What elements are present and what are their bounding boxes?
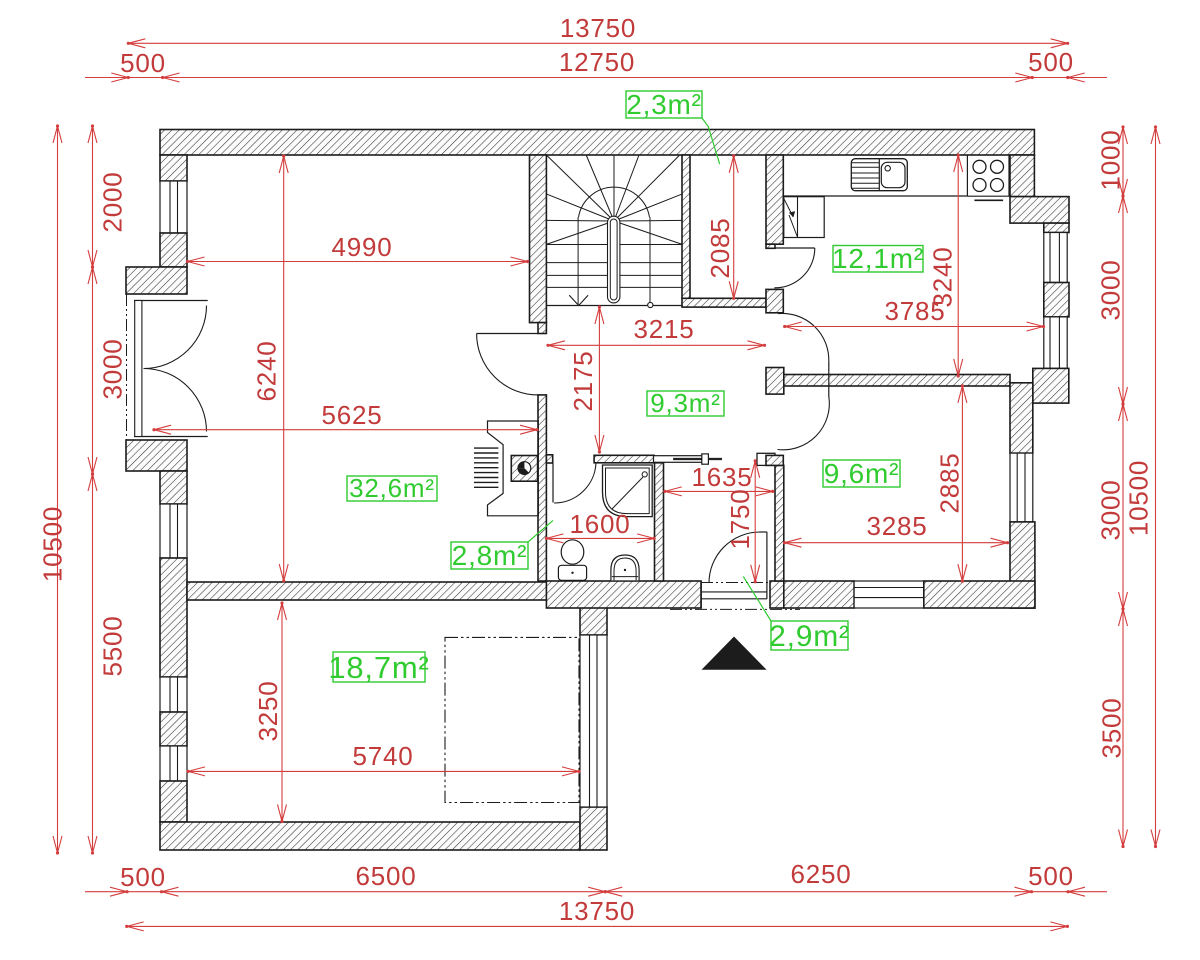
svg-text:13750: 13750 xyxy=(559,896,635,926)
svg-text:2,8m²: 2,8m² xyxy=(452,540,528,571)
svg-text:1750: 1750 xyxy=(725,488,755,549)
svg-text:3000: 3000 xyxy=(1096,479,1126,540)
svg-text:2,9m²: 2,9m² xyxy=(769,620,850,653)
svg-text:1000: 1000 xyxy=(1096,129,1126,190)
svg-text:3250: 3250 xyxy=(253,680,283,741)
svg-text:3500: 3500 xyxy=(1097,697,1127,758)
svg-text:500: 500 xyxy=(1028,47,1074,77)
svg-text:3000: 3000 xyxy=(1096,259,1126,320)
svg-text:12,1m²: 12,1m² xyxy=(832,243,924,274)
svg-text:1635: 1635 xyxy=(691,462,752,492)
svg-text:3215: 3215 xyxy=(633,314,694,344)
svg-text:2085: 2085 xyxy=(705,217,735,278)
svg-text:6250: 6250 xyxy=(790,859,851,889)
svg-text:500: 500 xyxy=(1028,861,1074,891)
svg-text:3000: 3000 xyxy=(98,338,128,399)
svg-text:2175: 2175 xyxy=(568,350,598,411)
svg-text:2000: 2000 xyxy=(98,171,128,232)
svg-text:5740: 5740 xyxy=(352,741,413,771)
svg-text:6240: 6240 xyxy=(252,340,282,401)
svg-text:4990: 4990 xyxy=(331,232,392,262)
svg-text:6500: 6500 xyxy=(355,861,416,891)
svg-text:500: 500 xyxy=(120,862,166,892)
svg-text:3240: 3240 xyxy=(928,246,958,307)
svg-text:18,7m²: 18,7m² xyxy=(328,650,429,685)
svg-text:32,6m²: 32,6m² xyxy=(349,473,435,503)
svg-text:3285: 3285 xyxy=(866,511,927,541)
svg-text:2885: 2885 xyxy=(935,452,965,513)
svg-text:5625: 5625 xyxy=(321,400,382,430)
svg-text:1600: 1600 xyxy=(569,509,630,539)
svg-text:500: 500 xyxy=(120,48,166,78)
svg-text:2,3m²: 2,3m² xyxy=(626,89,702,120)
svg-text:12750: 12750 xyxy=(559,47,635,77)
svg-text:9,6m²: 9,6m² xyxy=(824,458,900,489)
svg-text:13750: 13750 xyxy=(560,13,636,43)
svg-text:5500: 5500 xyxy=(98,615,128,676)
svg-text:10500: 10500 xyxy=(38,506,68,582)
svg-text:10500: 10500 xyxy=(1124,460,1154,536)
svg-text:9,3m²: 9,3m² xyxy=(650,388,720,418)
